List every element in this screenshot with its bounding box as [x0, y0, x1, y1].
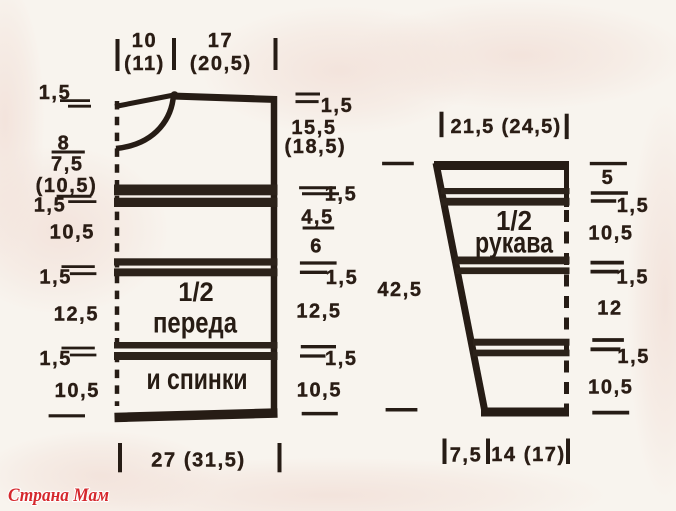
- svg-text:27 (31,5): 27 (31,5): [151, 450, 245, 472]
- svg-text:1,5: 1,5: [325, 184, 358, 206]
- svg-text:1,5: 1,5: [321, 95, 354, 117]
- svg-text:(11): (11): [124, 53, 165, 75]
- svg-text:12,5: 12,5: [54, 304, 99, 326]
- svg-text:5: 5: [602, 167, 615, 189]
- svg-text:1,5: 1,5: [34, 195, 67, 217]
- svg-text:10: 10: [132, 30, 157, 52]
- svg-text:10,5: 10,5: [588, 223, 633, 245]
- svg-text:6: 6: [310, 236, 323, 258]
- svg-text:10,5: 10,5: [588, 377, 633, 399]
- svg-text:7,5: 7,5: [450, 445, 483, 467]
- svg-text:7,5: 7,5: [51, 154, 84, 176]
- svg-text:42,5: 42,5: [377, 279, 422, 301]
- svg-text:12: 12: [597, 298, 622, 320]
- svg-text:1,5: 1,5: [617, 346, 650, 368]
- svg-text:Страна Мам: Страна Мам: [8, 485, 109, 506]
- svg-text:1,5: 1,5: [325, 348, 358, 370]
- svg-text:1,5: 1,5: [39, 267, 72, 289]
- svg-text:1/2: 1/2: [178, 277, 213, 307]
- svg-text:10,5: 10,5: [50, 222, 95, 244]
- svg-text:10,5: 10,5: [297, 380, 342, 402]
- svg-text:10,5: 10,5: [55, 380, 100, 402]
- svg-text:1,5: 1,5: [326, 267, 359, 289]
- svg-text:1,5: 1,5: [616, 266, 649, 288]
- svg-text:4,5: 4,5: [301, 207, 334, 229]
- svg-text:рукава: рукава: [475, 227, 553, 260]
- svg-text:12,5: 12,5: [296, 301, 341, 323]
- svg-text:(20,5): (20,5): [190, 53, 252, 75]
- svg-text:переда: переда: [153, 307, 237, 340]
- svg-text:1,5: 1,5: [39, 348, 72, 370]
- svg-text:1,5: 1,5: [617, 195, 650, 217]
- svg-text:14 (17): 14 (17): [491, 444, 566, 466]
- svg-text:21,5 (24,5): 21,5 (24,5): [450, 116, 561, 138]
- svg-text:(18,5): (18,5): [284, 136, 346, 158]
- svg-text:17: 17: [208, 30, 233, 52]
- svg-text:и спинки: и спинки: [147, 363, 248, 396]
